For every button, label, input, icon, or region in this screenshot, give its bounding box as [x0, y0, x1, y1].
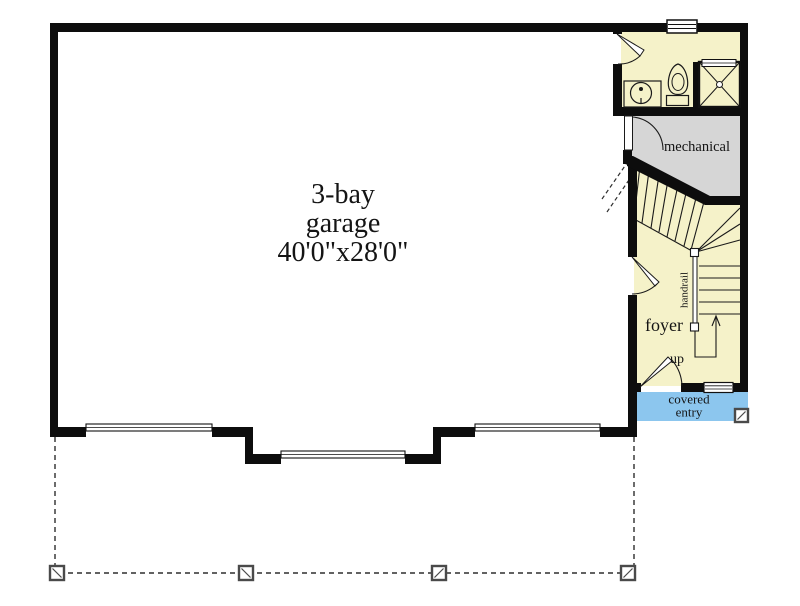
handrail-label: handrail — [680, 272, 691, 308]
covered-entry-line2: entry — [668, 406, 709, 419]
up-label: up — [670, 353, 684, 367]
dashed-header-lines — [602, 163, 631, 212]
foyer-left-wall-upper — [628, 160, 637, 257]
porch-post-2 — [239, 566, 253, 580]
left-exterior-wall — [50, 23, 58, 437]
garage-dimensions: 40'0"x28'0" — [278, 238, 409, 267]
foyer-left-wall-lower — [628, 295, 637, 437]
newel-post-bottom — [691, 323, 699, 331]
garage-front-wall-c — [245, 454, 281, 464]
door-leaf-mechanical — [625, 116, 633, 150]
porch-post-1 — [50, 566, 64, 580]
garage-front-wall-e — [433, 427, 475, 437]
porch-post-3 — [432, 566, 446, 580]
garage-front-wall-a — [50, 427, 86, 437]
right-exterior-wall — [740, 23, 748, 392]
garage-label-line1: 3-bay — [278, 180, 409, 209]
covered-entry-label: covered entry — [668, 394, 709, 419]
window-icon-bathroom — [667, 20, 697, 33]
top-exterior-wall — [50, 23, 748, 32]
foyer-label: foyer — [645, 316, 683, 334]
handrail-line — [693, 255, 697, 325]
bathroom-bottom-wall — [613, 107, 748, 116]
porch-post-4 — [621, 566, 635, 580]
bathroom-left-wall-top — [613, 23, 622, 34]
foyer-front-wall-a — [628, 383, 641, 392]
entry-post — [735, 409, 748, 422]
newel-post-top — [691, 249, 699, 257]
garage-label: 3-bay garage 40'0"x28'0" — [278, 180, 409, 267]
shower-drain — [717, 82, 723, 88]
bathroom-floor — [621, 31, 742, 109]
garage-doors — [86, 424, 600, 464]
garage-label-line2: garage — [278, 209, 409, 238]
mechanical-label: mechanical — [664, 140, 730, 155]
floor-plan: 3-bay garage 40'0"x28'0" mechanical foye… — [0, 0, 800, 606]
